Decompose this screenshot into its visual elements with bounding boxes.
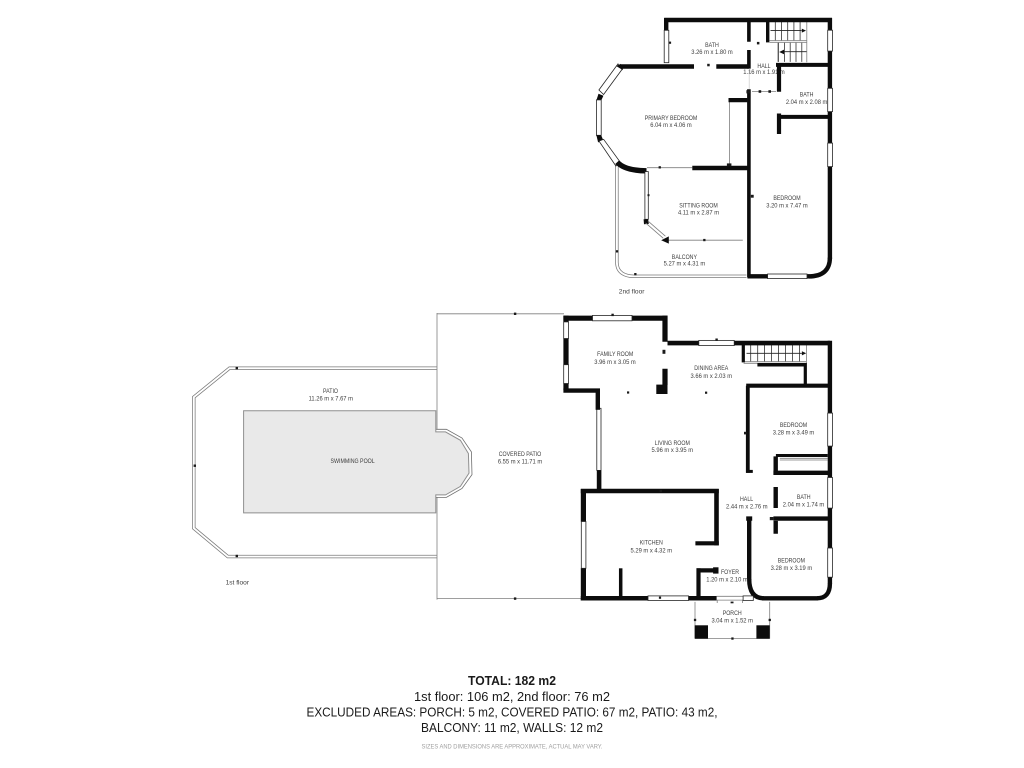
svg-text:DINING AREA: DINING AREA (694, 365, 729, 372)
svg-text:BEDROOM: BEDROOM (778, 557, 805, 564)
svg-text:EXCLUDED AREAS: PORCH: 5 m2, C: EXCLUDED AREAS: PORCH: 5 m2, COVERED PAT… (307, 705, 718, 720)
svg-text:3.96 m x 3.05 m: 3.96 m x 3.05 m (594, 359, 636, 366)
svg-text:11.26 m x 7.67 m: 11.26 m x 7.67 m (309, 396, 353, 403)
svg-text:1st floor: 106 m2, 2nd floor:: 1st floor: 106 m2, 2nd floor: 76 m2 (414, 689, 610, 704)
svg-text:COVERED PATIO: COVERED PATIO (499, 451, 542, 458)
svg-text:2nd floor: 2nd floor (619, 289, 645, 296)
svg-text:TOTAL: 182 m2: TOTAL: 182 m2 (468, 673, 556, 688)
svg-text:BATH: BATH (800, 92, 814, 99)
svg-text:PATIO: PATIO (323, 388, 338, 395)
svg-text:BEDROOM: BEDROOM (773, 195, 800, 202)
svg-text:3.28 m x 3.49 m: 3.28 m x 3.49 m (773, 430, 815, 437)
svg-text:BATH: BATH (797, 494, 811, 501)
svg-text:2.44 m x 2.76 m: 2.44 m x 2.76 m (726, 504, 768, 511)
svg-text:3.66 m x 2.03 m: 3.66 m x 2.03 m (691, 373, 733, 380)
svg-text:SITTING ROOM: SITTING ROOM (679, 203, 718, 210)
svg-text:FAMILY ROOM: FAMILY ROOM (597, 351, 633, 358)
svg-text:3.26 m x 1.80 m: 3.26 m x 1.80 m (691, 49, 733, 56)
svg-text:KITCHEN: KITCHEN (640, 540, 663, 547)
svg-text:FOYER: FOYER (721, 569, 739, 576)
svg-text:BALCONY: 11 m2, WALLS: 12 m2: BALCONY: 11 m2, WALLS: 12 m2 (421, 720, 603, 735)
svg-text:6.55 m x 11.71 m: 6.55 m x 11.71 m (498, 459, 542, 466)
svg-text:3.04 m x 1.52 m: 3.04 m x 1.52 m (711, 618, 753, 625)
svg-text:HALL: HALL (740, 496, 754, 503)
svg-text:4.11 m x 2.87 m: 4.11 m x 2.87 m (678, 210, 719, 217)
svg-text:5.96 m x 3.95 m: 5.96 m x 3.95 m (652, 447, 694, 454)
svg-text:5.29 m x 4.32 m: 5.29 m x 4.32 m (631, 548, 673, 555)
svg-text:1.20 m x 2.10 m: 1.20 m x 2.10 m (706, 577, 748, 584)
svg-text:3.28 m x 3.19 m: 3.28 m x 3.19 m (771, 565, 813, 572)
svg-text:PORCH: PORCH (723, 610, 742, 617)
svg-text:2.04 m x 1.74 m: 2.04 m x 1.74 m (783, 501, 825, 508)
svg-text:2.04 m x 2.08 m: 2.04 m x 2.08 m (786, 99, 828, 106)
svg-text:1st floor: 1st floor (226, 580, 250, 587)
svg-text:BEDROOM: BEDROOM (780, 422, 807, 429)
svg-text:BATH: BATH (705, 42, 719, 49)
svg-text:6.04 m x 4.06 m: 6.04 m x 4.06 m (650, 122, 692, 129)
svg-text:5.27 m x 4.31 m: 5.27 m x 4.31 m (664, 261, 706, 268)
svg-text:3.20 m x 7.47 m: 3.20 m x 7.47 m (766, 203, 808, 210)
svg-text:PRIMARY BEDROOM: PRIMARY BEDROOM (645, 115, 698, 122)
svg-text:SWIMMING POOL: SWIMMING POOL (331, 458, 376, 465)
svg-text:SIZES AND DIMENSIONS ARE APPRO: SIZES AND DIMENSIONS ARE APPROXIMATE, AC… (422, 744, 603, 751)
